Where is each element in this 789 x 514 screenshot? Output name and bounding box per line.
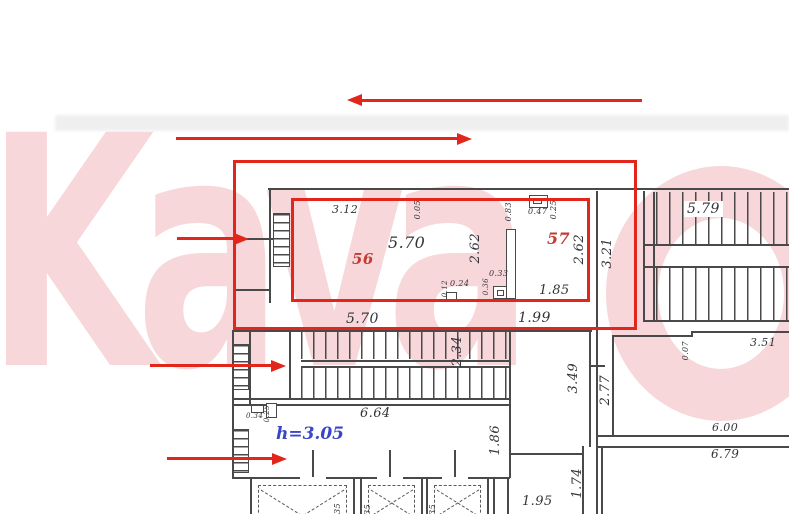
- room351-top-wall: [612, 335, 693, 337]
- wall-600: [596, 435, 789, 437]
- arrow-right-head-icon: [271, 360, 286, 372]
- corridor-wall-right: [643, 191, 645, 322]
- dim-6-64: 6.64: [360, 406, 391, 421]
- dimension-tick: [589, 365, 605, 367]
- dim-1-95: 1.95: [522, 494, 553, 509]
- room199-right-wall: [589, 330, 591, 447]
- annotation-arrow-stairs: [150, 364, 272, 367]
- window-icon: [233, 344, 249, 390]
- arrow-right-head-icon: [234, 233, 249, 245]
- dim-elevator-1: 1.35: [333, 503, 342, 514]
- stairs-landing-line: [301, 360, 509, 362]
- annotation-arrow-top: [361, 99, 642, 102]
- room679-left-wall: [601, 446, 603, 514]
- elevator-cab-dashed: [368, 485, 415, 514]
- dim-2-34: 2.34: [450, 336, 465, 367]
- dim-0-34: 0.34: [246, 412, 263, 420]
- dim-6-00: 6.00: [712, 421, 738, 434]
- shaft-duct: [493, 477, 509, 514]
- stairs-mid-left-wall: [289, 330, 291, 400]
- dim-elevator-3: 1.35: [428, 504, 437, 514]
- dim-1-86: 1.86: [488, 425, 503, 456]
- door-gap: [300, 477, 326, 481]
- door-gap: [442, 477, 468, 481]
- stairs-bottom-wall: [643, 320, 789, 322]
- window-icon: [233, 429, 249, 473]
- wall-inner-face: [249, 331, 251, 404]
- stairs-right-edge: [653, 192, 655, 320]
- annotation-arrow-room56: [177, 237, 235, 240]
- annotation-arrow-lower-room: [167, 457, 273, 460]
- dim-3-51: 3.51: [750, 336, 776, 349]
- dim-0-07: 0.07: [681, 341, 690, 360]
- wall-679: [596, 446, 789, 448]
- staircase-icon: [301, 368, 509, 398]
- stairs-mid-bottom-wall: [233, 398, 510, 400]
- floor-plan-screenshot: Kava: [0, 0, 789, 514]
- dim-6-79: 6.79: [711, 447, 739, 461]
- staircase-icon: [656, 268, 789, 320]
- scan-artifact-band: [55, 115, 789, 131]
- door-gap: [377, 477, 403, 481]
- staircase-icon: [656, 192, 789, 244]
- ceiling-height-note: h=3.05: [276, 424, 344, 444]
- elevator-cab-dashed: [434, 485, 481, 514]
- arrow-right-head-icon: [272, 453, 287, 465]
- dim-1-74: 1.74: [570, 468, 585, 499]
- red-highlight-rooms-56-57: [291, 198, 590, 302]
- arrow-right-head-icon: [457, 133, 472, 145]
- dim-0-25-fixture: 0.25: [263, 405, 271, 422]
- room351-top-wall-right: [691, 331, 789, 333]
- dim-elevator-2: 1.35: [363, 504, 372, 514]
- annotation-arrow-upper: [176, 137, 458, 140]
- dim-3-49: 3.49: [566, 363, 581, 394]
- room195-top-wall: [509, 453, 583, 455]
- stairs-landing-line: [643, 244, 789, 246]
- arrow-left-head-icon: [347, 94, 362, 106]
- staircase-icon: [301, 332, 509, 359]
- dim-5-79: 5.79: [684, 201, 723, 217]
- dim-2-77: 2.77: [598, 375, 613, 406]
